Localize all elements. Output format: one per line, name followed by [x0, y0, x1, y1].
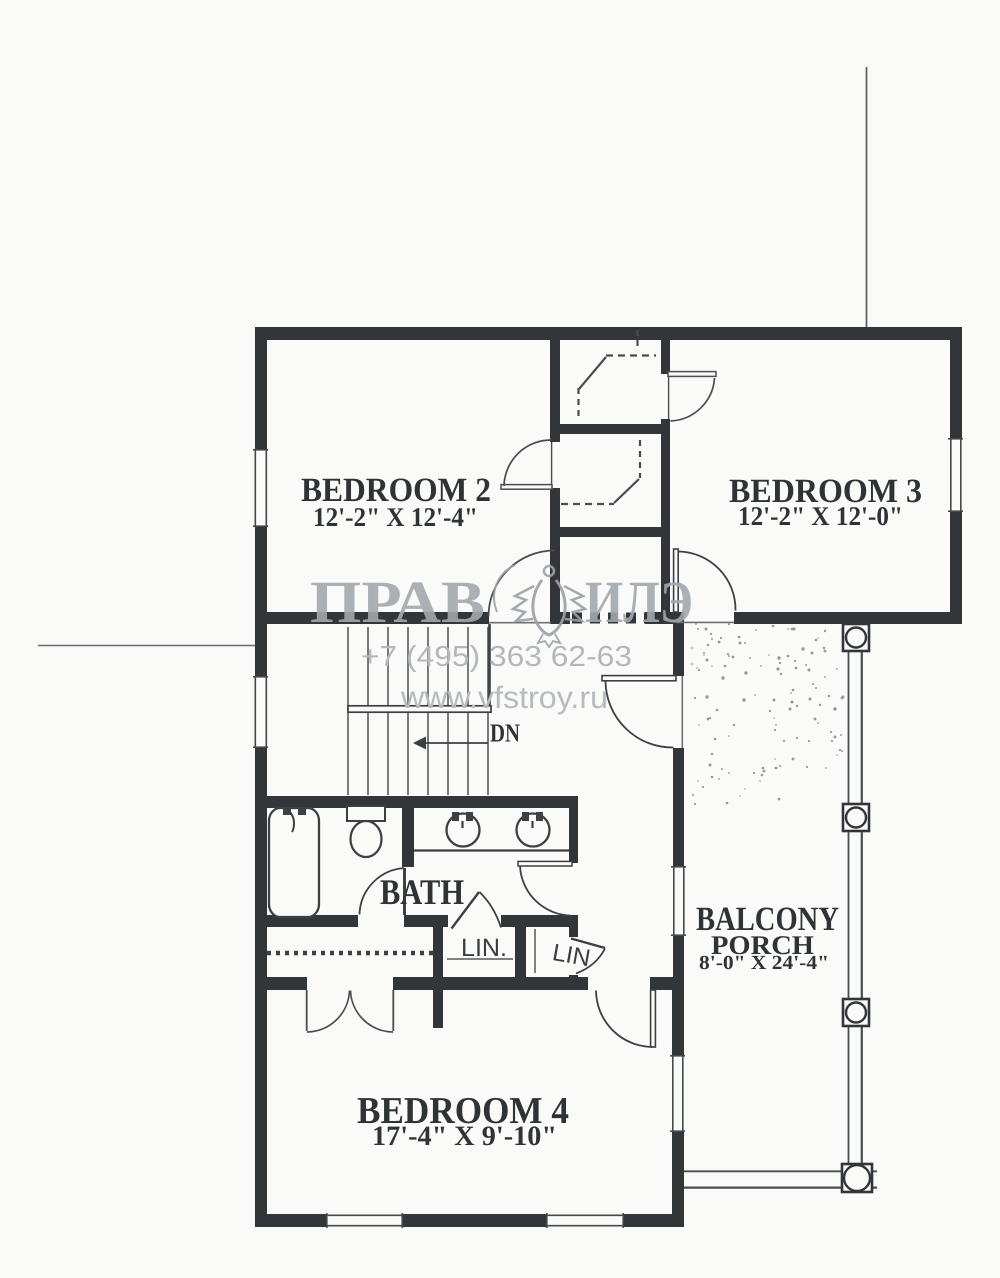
svg-text:BATH: BATH	[380, 872, 464, 912]
svg-text:12'-2" X 12'-4": 12'-2" X 12'-4"	[313, 502, 478, 532]
svg-text:www.vfstroy.ru: www.vfstroy.ru	[400, 680, 608, 715]
svg-text:ПРАВ: ПРАВ	[310, 569, 485, 635]
svg-text:LIN: LIN	[550, 939, 592, 972]
svg-text:DN: DN	[490, 719, 520, 748]
svg-text:8'-0" X 24'-4": 8'-0" X 24'-4"	[699, 952, 829, 974]
svg-text:ИЛЭ: ИЛЭ	[585, 569, 693, 635]
svg-text:17'-4" X 9'-10": 17'-4" X 9'-10"	[372, 1121, 557, 1152]
svg-text:12'-2" X 12'-0": 12'-2" X 12'-0"	[738, 501, 903, 531]
svg-text:+7 (495) 363 62-63: +7 (495) 363 62-63	[361, 641, 632, 673]
svg-text:LIN.: LIN.	[461, 934, 507, 962]
